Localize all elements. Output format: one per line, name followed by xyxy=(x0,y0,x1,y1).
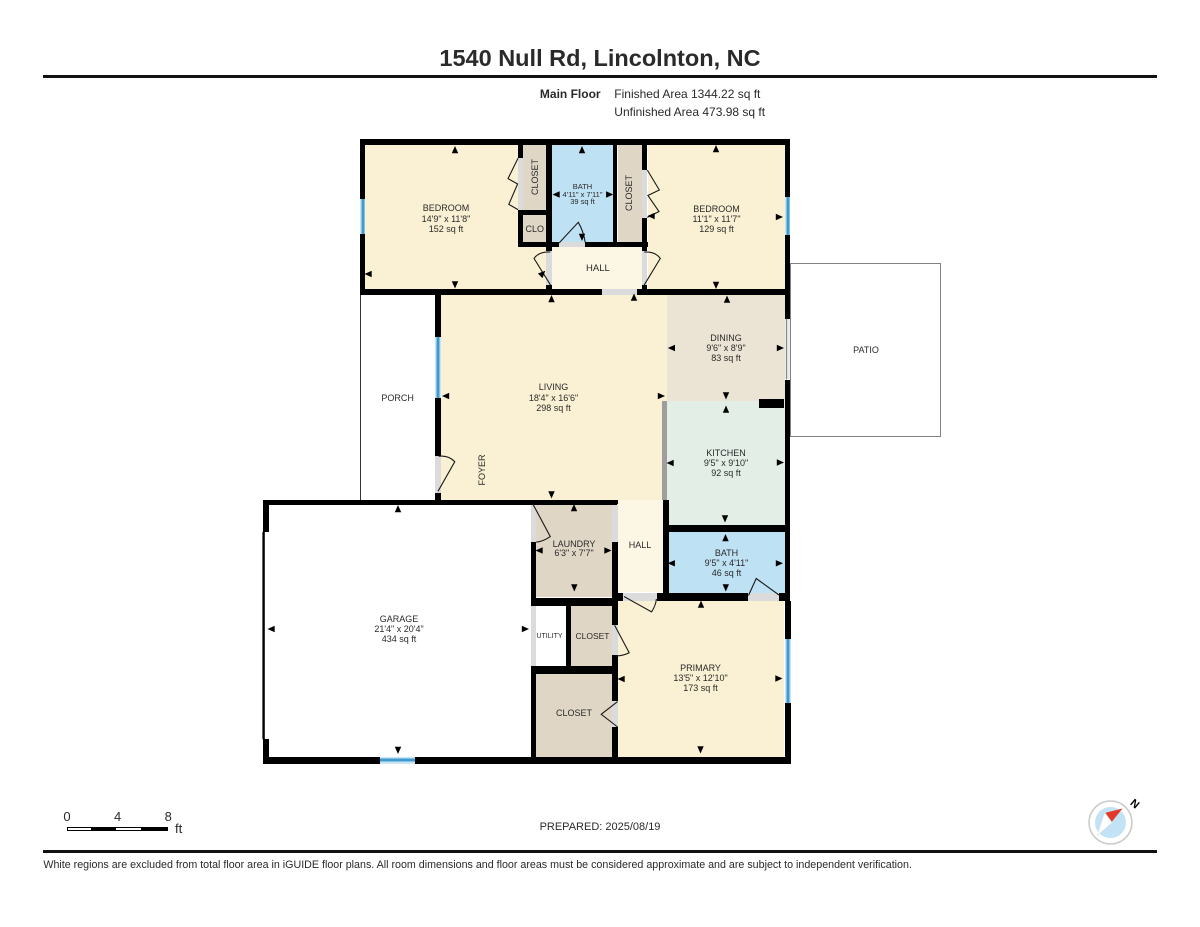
svg-text:N: N xyxy=(1128,797,1142,811)
